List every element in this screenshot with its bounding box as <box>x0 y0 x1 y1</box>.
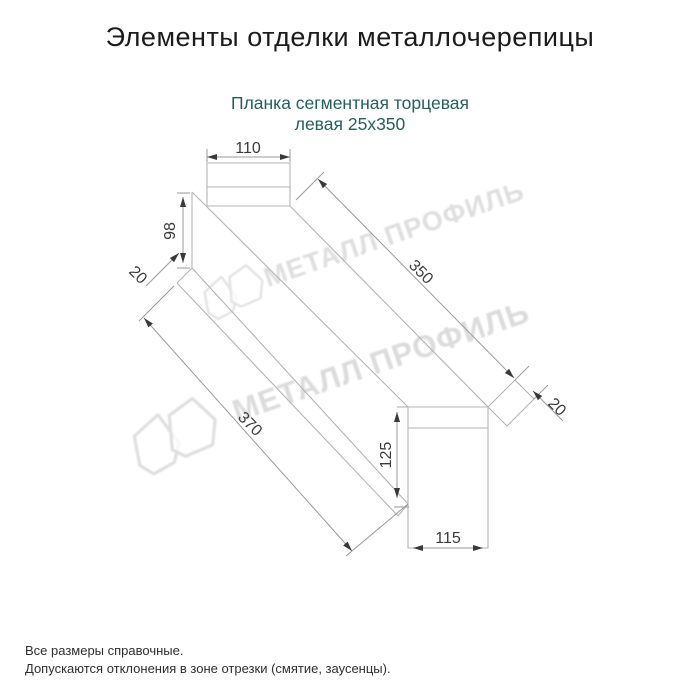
left-end-tab <box>207 163 290 206</box>
footer-note-1: Все размеры справочные. <box>25 643 183 658</box>
front-bottom-edge <box>192 268 408 504</box>
technical-drawing: МЕТАЛЛ ПРОФИЛЬ МЕТАЛЛ ПРОФИЛЬ <box>0 0 700 700</box>
footer-note-2: Допускаются отклонения в зоне отрезки (с… <box>25 661 391 676</box>
ext-350-left <box>296 172 324 200</box>
metall-profil-logo-icon <box>198 262 270 322</box>
ext-370-left <box>139 286 174 321</box>
page: { "title": "Элементы отделки металлочере… <box>0 0 700 700</box>
metall-profil-logo-icon <box>125 394 226 478</box>
dim-label-right-height: 125 <box>378 442 395 469</box>
watermark-upper: МЕТАЛЛ ПРОФИЛЬ <box>198 172 531 322</box>
ext-370-right <box>346 504 408 556</box>
dim-label-bottom-width: 115 <box>435 530 461 547</box>
ext-350-right <box>515 366 529 380</box>
ext-20r <box>534 385 548 399</box>
profile-outline <box>177 163 534 548</box>
watermark-text: МЕТАЛЛ ПРОФИЛЬ <box>260 176 528 293</box>
bottom-fold-long-edge <box>177 283 398 516</box>
dim-label-right-fold: 20 <box>544 395 569 420</box>
dim-label-top-width: 110 <box>235 140 261 157</box>
dim-label-left-height: 98 <box>162 222 179 240</box>
watermark-lower: МЕТАЛЛ ПРОФИЛЬ <box>125 286 539 478</box>
left-bottom-fold-edge <box>177 268 192 283</box>
dim-label-top-length: 350 <box>405 257 436 288</box>
dim-label-left-fold: 20 <box>125 263 150 288</box>
dim-line-20-left <box>146 253 179 286</box>
right-top-fold-piece <box>488 380 534 426</box>
